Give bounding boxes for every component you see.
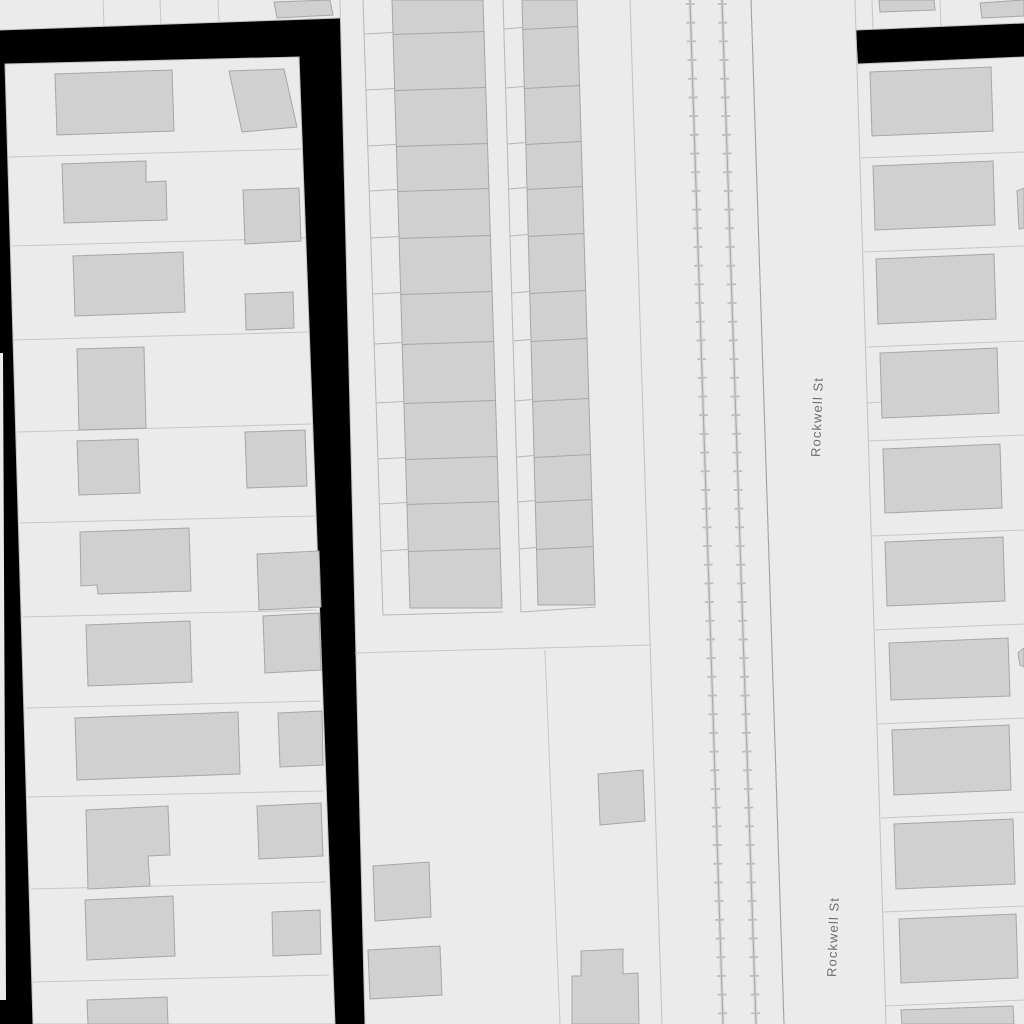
building xyxy=(75,712,240,780)
building xyxy=(892,725,1011,795)
building xyxy=(73,252,185,316)
building xyxy=(876,254,996,324)
building xyxy=(55,70,174,135)
building xyxy=(245,292,294,330)
building xyxy=(889,638,1010,700)
building xyxy=(885,537,1005,606)
building xyxy=(870,67,993,136)
building xyxy=(879,0,935,12)
building xyxy=(245,430,307,488)
building xyxy=(263,613,321,673)
building xyxy=(257,551,321,610)
building xyxy=(894,819,1015,889)
street-label-rockwell-north: Rockwell St xyxy=(808,377,826,457)
street-label-rockwell-south: Rockwell St xyxy=(824,897,842,977)
building xyxy=(77,347,146,430)
rowhouse-strip xyxy=(392,0,502,608)
map-canvas[interactable]: Rockwell St Rockwell St xyxy=(0,0,1024,1024)
building xyxy=(85,896,175,960)
building xyxy=(883,444,1002,513)
building xyxy=(373,862,431,921)
building xyxy=(873,161,995,230)
building xyxy=(243,188,301,244)
building xyxy=(880,348,999,418)
building xyxy=(272,910,321,956)
building xyxy=(274,0,333,18)
building xyxy=(77,439,140,495)
building xyxy=(598,770,645,825)
building xyxy=(278,711,323,767)
building xyxy=(87,997,168,1024)
building xyxy=(368,946,442,999)
building xyxy=(899,914,1018,983)
basemap-svg[interactable]: Rockwell St Rockwell St xyxy=(0,0,1024,1024)
building xyxy=(80,528,191,594)
building xyxy=(86,621,192,686)
building xyxy=(257,803,323,859)
building xyxy=(980,0,1024,18)
